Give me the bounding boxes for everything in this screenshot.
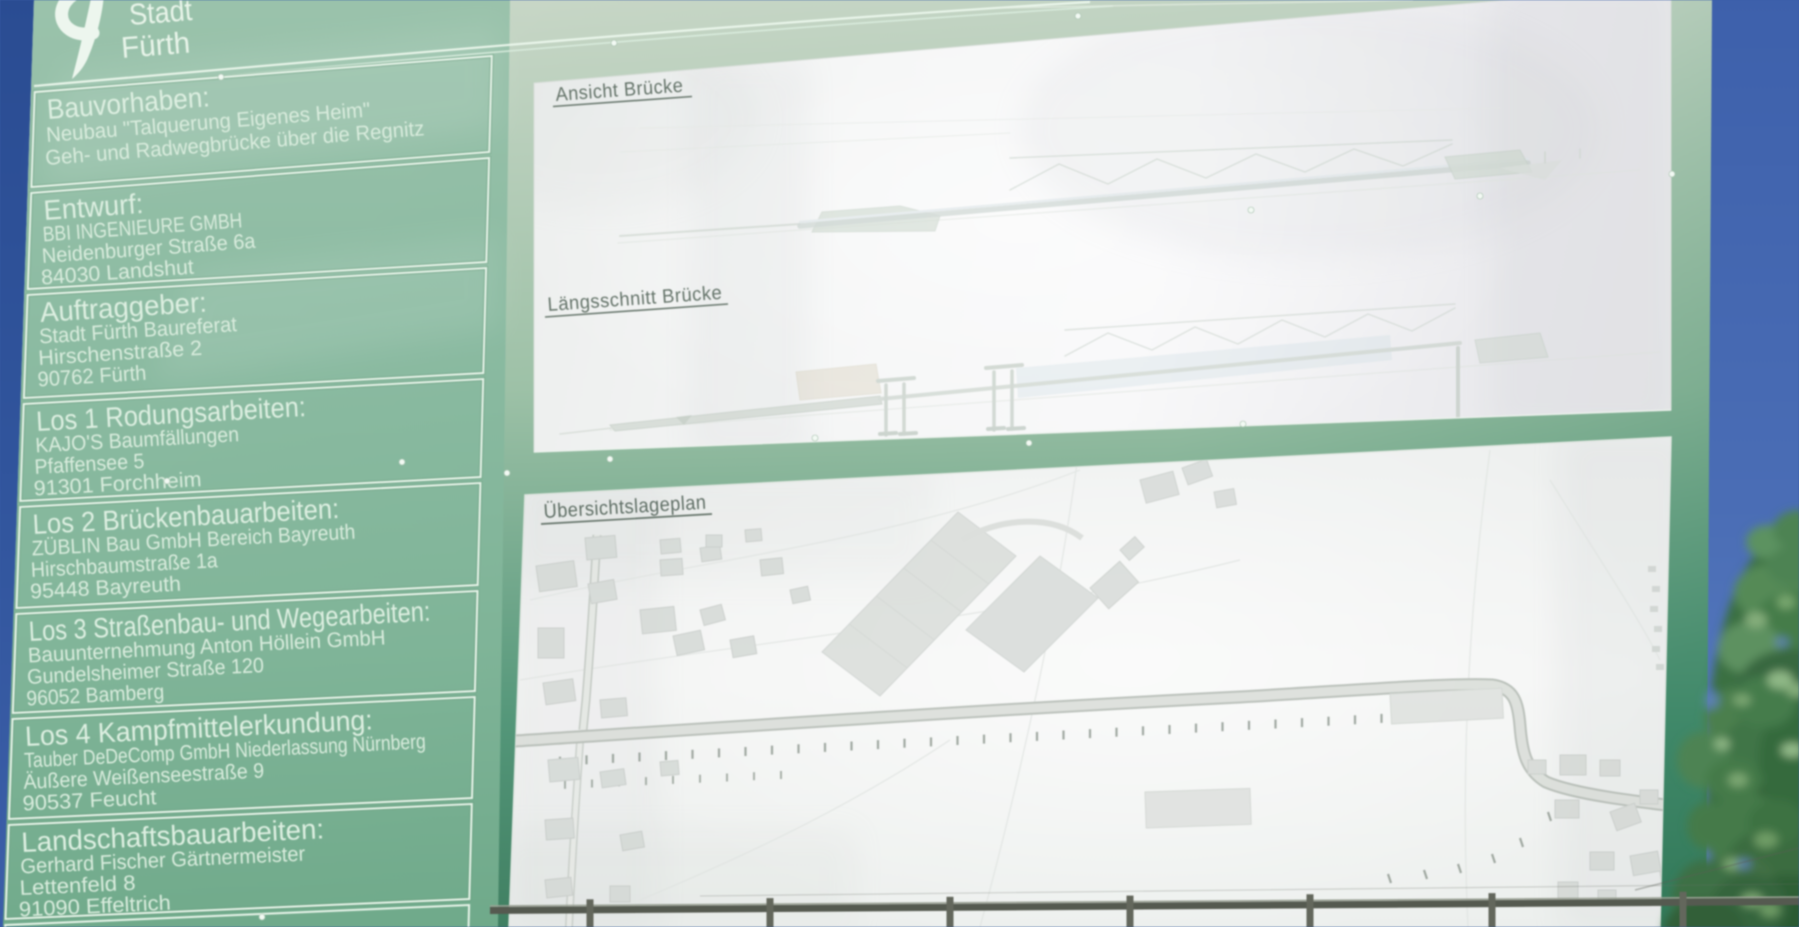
svg-text:Fürth: Fürth [120, 27, 191, 65]
